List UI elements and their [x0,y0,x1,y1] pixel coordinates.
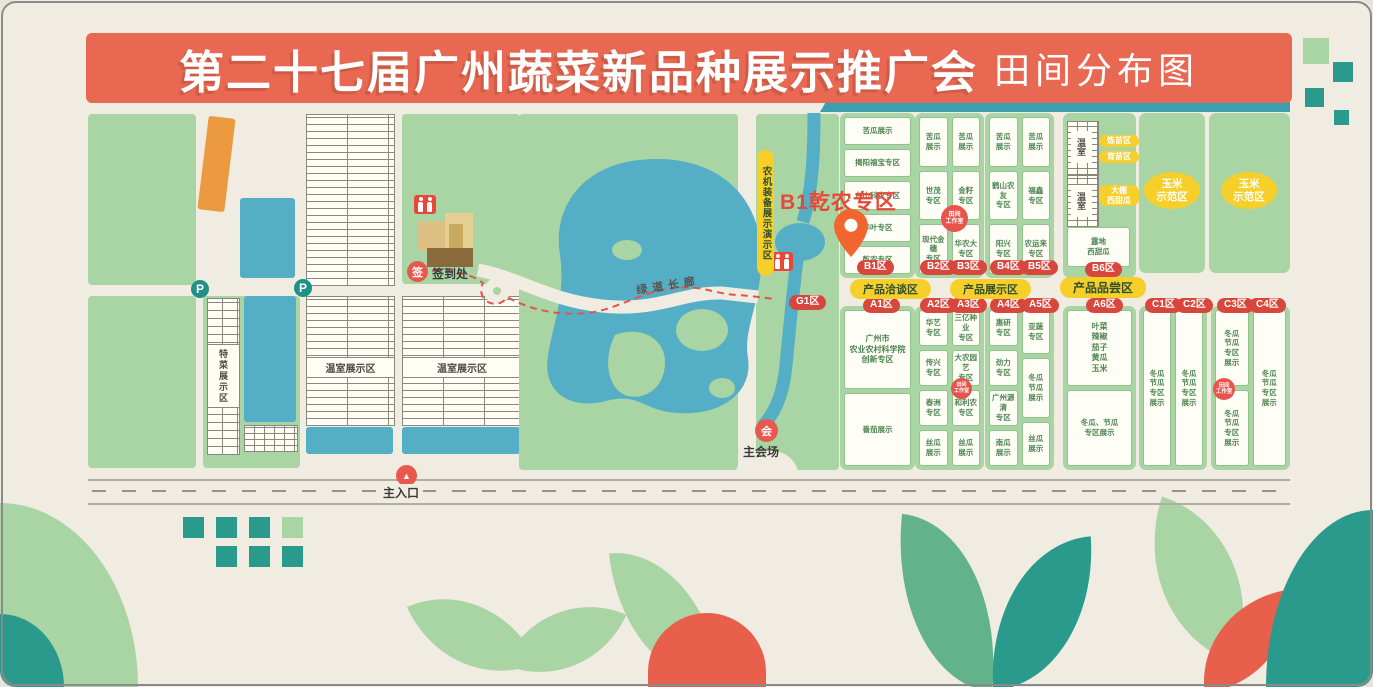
restroom-icon [414,195,436,214]
zone-pill-b6: B6区 [1085,262,1122,277]
parking-icon: P [294,279,312,297]
workstation-badge: 田间 工作室 [1213,378,1235,400]
seedling-pill: 炼苗区 [1099,135,1139,147]
workstation-badge: 田间 工作室 [951,378,972,399]
seedling-pill: 育苗区 [1099,151,1139,163]
restroom-icon [771,252,793,271]
display-area-pill: 产品展示区 [950,279,1031,299]
zone-pill-a5: A5区 [1022,298,1059,313]
zone-pill-a6: A6区 [1086,298,1123,313]
location-pin-icon [834,209,868,257]
signin-label: 签到处 [432,265,468,282]
parking-icon: P [191,280,209,298]
entrance-label: 主入口 [379,484,423,501]
signin-icon: 签 [407,261,428,282]
field-distribution-map: 第二十七届广州蔬菜新品种展示推广会 田间分布图 特菜展示区 温室展示区 温室展示… [0,0,1373,687]
zone-pill-g1: G1区 [789,295,826,310]
corn-demo-label: 玉米 示范区 [1221,172,1277,209]
zone-pill-a3: A3区 [950,298,987,313]
tasting-area-pill: 产品品尝区 [1060,277,1146,298]
road-centerline [92,490,1286,492]
venue-icon: 会 [755,419,778,442]
venue-label: 主会场 [743,443,779,460]
zone-pill-b1: B1区 [857,260,894,275]
zone-pill-b3: B3区 [950,260,987,275]
zone-pill-b5: B5区 [1021,260,1058,275]
workstation-badge: 田间 工作室 [941,205,968,232]
melon-greenhouse-pill: 大棚 西甜瓜 [1099,185,1139,206]
corn-demo-label: 玉米 示范区 [1144,172,1200,209]
machinery-strip-label: 农机装备展示演示区 [757,150,774,276]
negotiation-area-pill: 产品洽谈区 [850,279,931,299]
zone-pill-c4: C4区 [1249,298,1286,313]
entrance-arrow-icon: ▲ [396,465,417,486]
zone-pill-c2: C2区 [1176,298,1213,313]
zone-pill-a1: A1区 [863,298,900,313]
main-road [88,479,1290,505]
pond-and-paths-overlay [0,0,1373,687]
